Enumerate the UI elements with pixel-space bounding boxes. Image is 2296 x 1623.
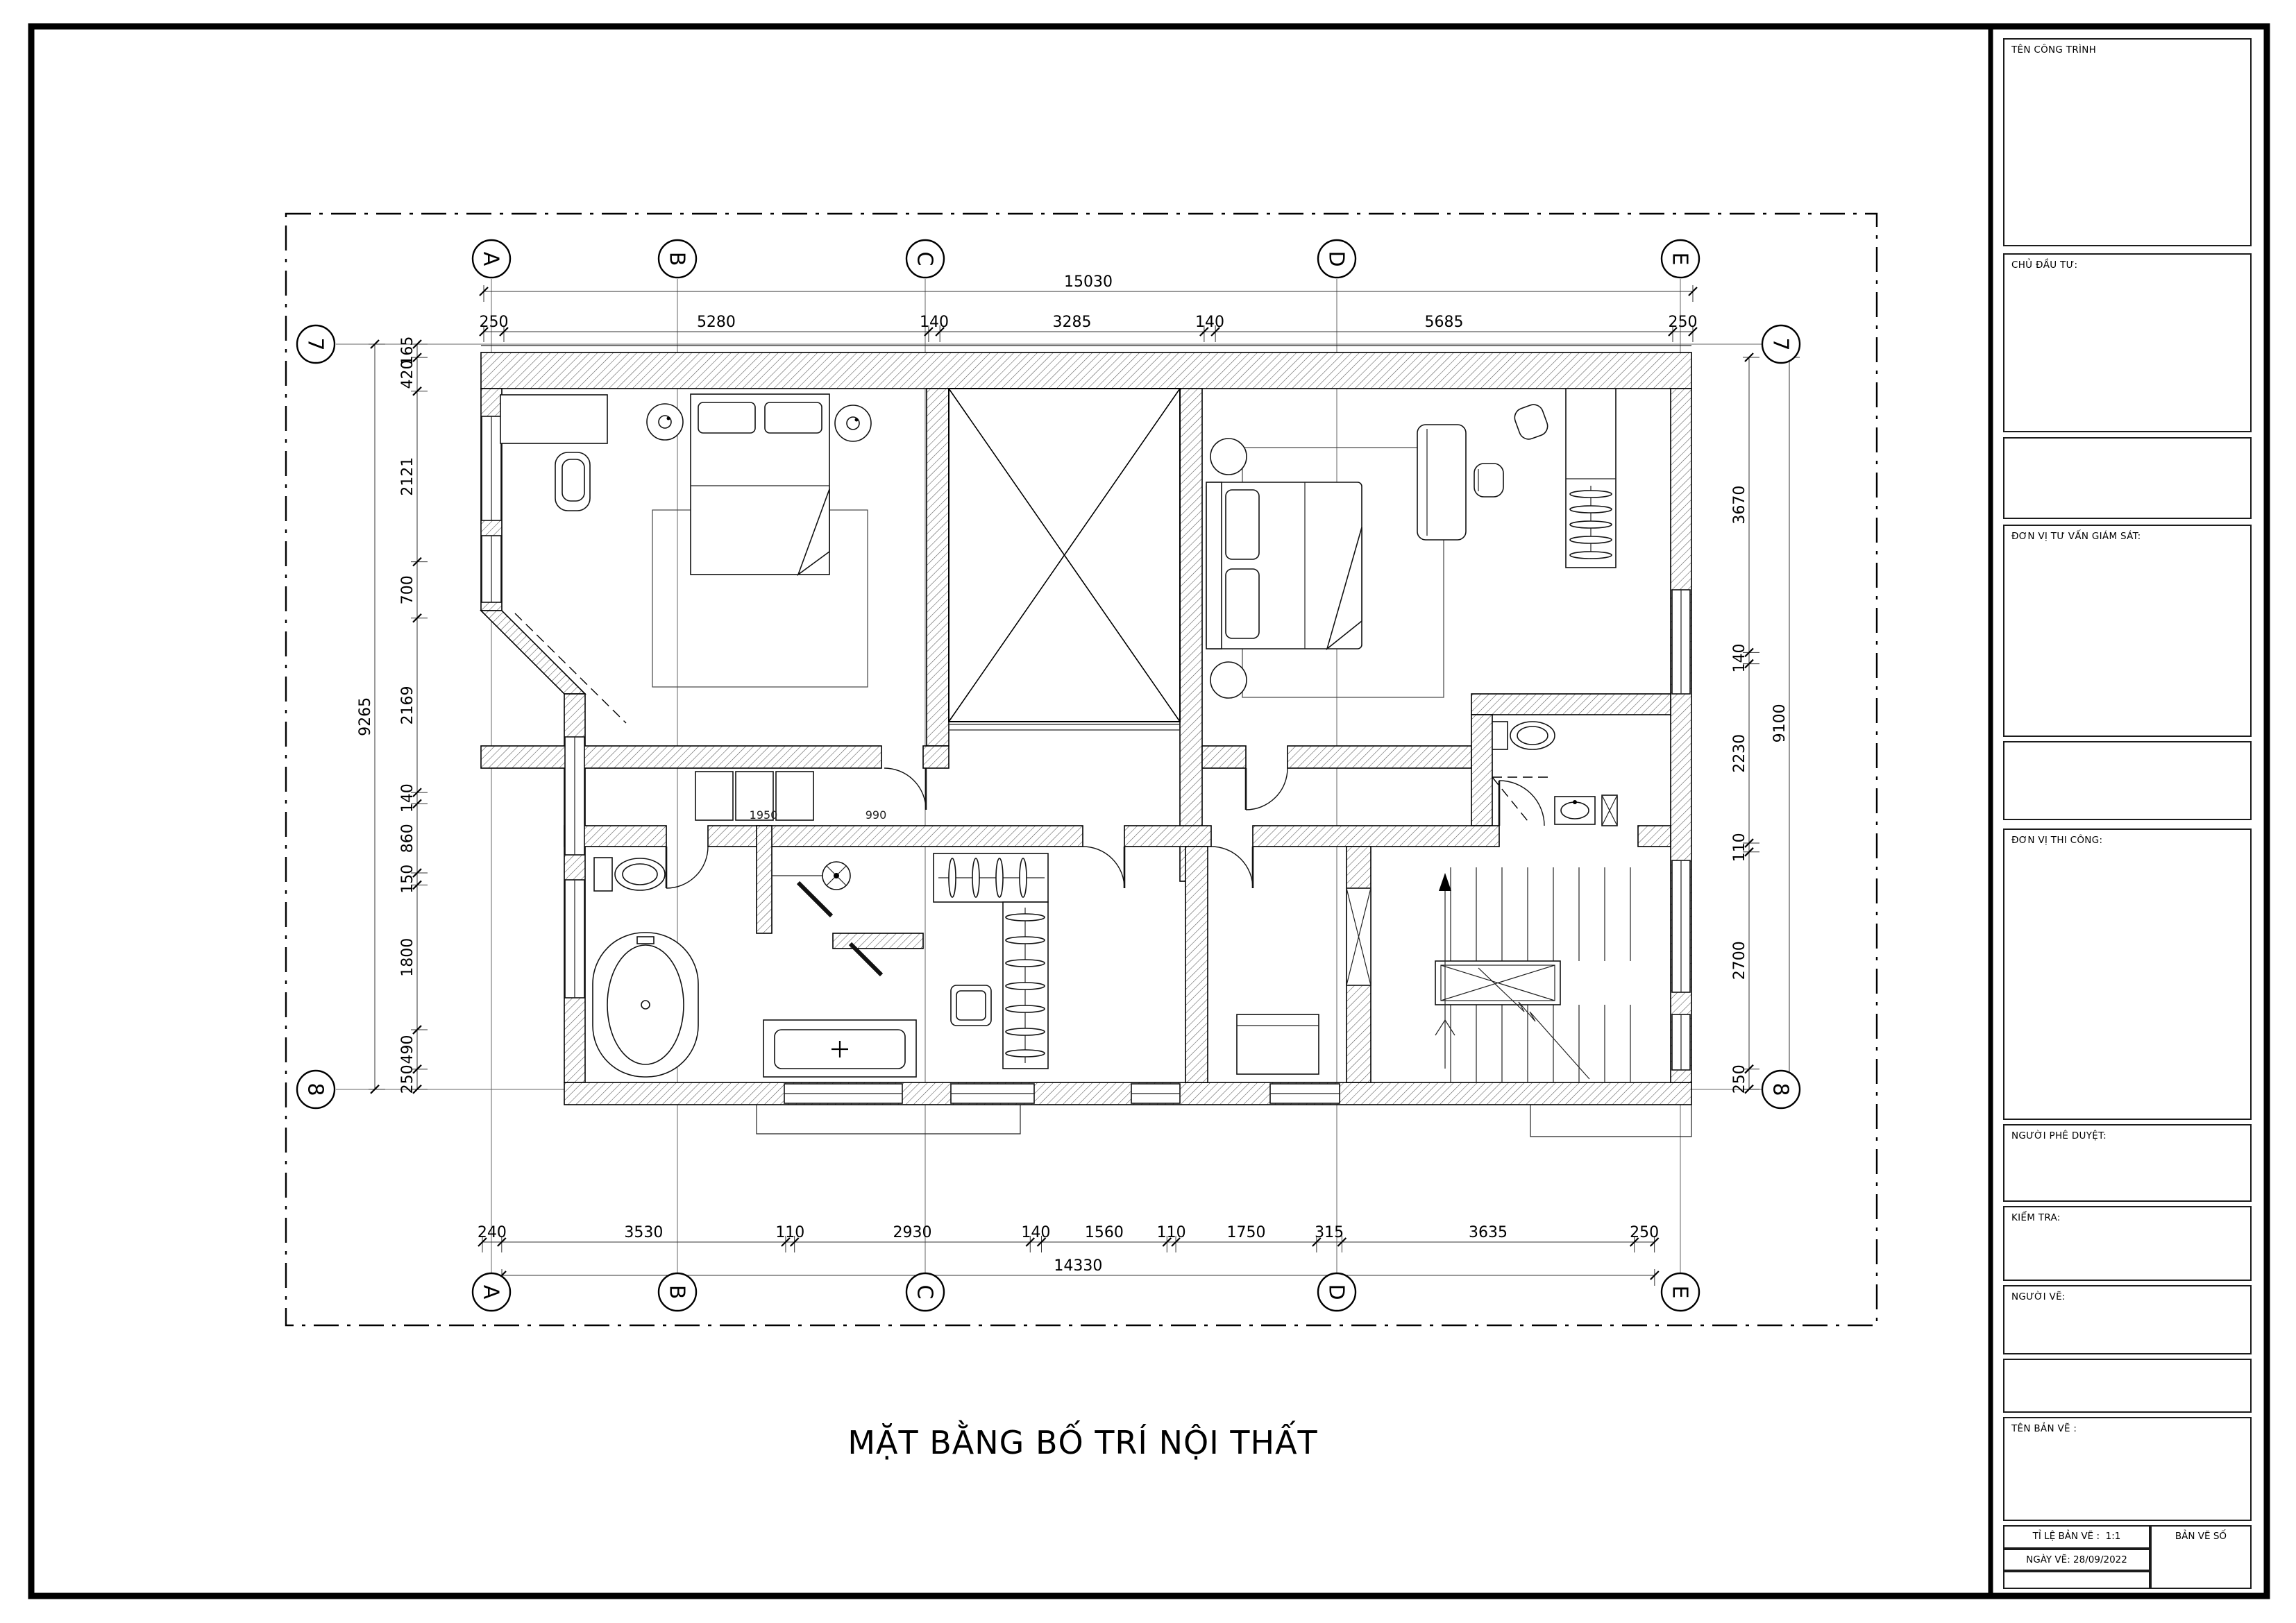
- dim-top-chain: 250528014032851405685250: [479, 314, 1697, 342]
- dim-top-overall: 15030: [480, 273, 1697, 302]
- bed-icon: [1206, 482, 1362, 649]
- svg-text:2169: 2169: [399, 686, 416, 724]
- svg-text:7: 7: [303, 337, 328, 350]
- dim-right-overall: 9100: [1771, 353, 1800, 1094]
- void-opening: [949, 389, 1180, 730]
- title-block-scale: TỈ LỆ BẢN VẼ : 1:1: [2003, 1525, 2150, 1549]
- staircase: [1435, 867, 1630, 1082]
- title-block-sheet-number: BẢN VẼ SỐ: [2150, 1525, 2252, 1589]
- svg-text:B: B: [665, 252, 689, 266]
- door-bath2: [1499, 781, 1544, 826]
- svg-text:3635: 3635: [1469, 1224, 1508, 1241]
- desk-chair-icon: [1474, 464, 1503, 497]
- svg-text:2930: 2930: [893, 1224, 931, 1241]
- svg-text:9265: 9265: [357, 697, 374, 736]
- svg-text:8: 8: [303, 1082, 328, 1096]
- nightstand-icon: [1210, 662, 1247, 698]
- grid-bubble-b-bottom: B: [659, 1273, 696, 1311]
- desk: [1417, 425, 1466, 540]
- table-lamp-icon: [647, 404, 683, 440]
- title-block-blank-1: [2003, 437, 2252, 519]
- svg-text:140: 140: [1195, 314, 1224, 331]
- inner-dim: 990: [866, 808, 887, 822]
- svg-text:860: 860: [399, 824, 416, 853]
- svg-text:250: 250: [479, 314, 508, 331]
- shaft-icon: [1347, 888, 1371, 985]
- window: [1270, 1084, 1340, 1103]
- nightstand-icon: [1210, 439, 1247, 475]
- table-lamp-icon: [835, 405, 871, 441]
- svg-text:1560: 1560: [1085, 1224, 1124, 1241]
- svg-text:240: 240: [478, 1224, 507, 1241]
- porch-step: [757, 1105, 1020, 1134]
- svg-text:700: 700: [399, 575, 416, 604]
- svg-text:D: D: [1324, 1284, 1349, 1300]
- svg-text:C: C: [913, 252, 937, 266]
- svg-text:110: 110: [1157, 1224, 1186, 1241]
- cabinet: [1237, 1014, 1319, 1074]
- svg-text:A: A: [479, 1285, 503, 1300]
- svg-text:E: E: [1668, 253, 1692, 266]
- svg-text:250: 250: [1668, 314, 1697, 331]
- svg-text:A: A: [479, 252, 503, 266]
- armchair-icon: [555, 452, 590, 511]
- grid-bubble-e-top: E: [1662, 240, 1699, 278]
- scale-value: 1:1: [2106, 1531, 2121, 1542]
- svg-text:110: 110: [775, 1224, 804, 1241]
- grid-bubble-d-top: D: [1318, 240, 1356, 278]
- title-block-blank-4: [2003, 1571, 2150, 1589]
- toilet-icon: [1492, 722, 1555, 749]
- dim-left-overall: 9265: [357, 340, 385, 1094]
- title-block-drafter: NGƯỜI VẼ:: [2003, 1285, 2252, 1354]
- svg-text:5685: 5685: [1425, 314, 1464, 331]
- floor-plan-canvas: 15030 250528014032851405685250 9265 1654…: [0, 0, 2296, 1623]
- svg-text:D: D: [1324, 250, 1349, 266]
- bed-icon: [691, 394, 829, 575]
- chair-icon: [1512, 402, 1550, 442]
- svg-text:250: 250: [399, 1064, 416, 1094]
- sink-icon: [1555, 797, 1595, 824]
- svg-text:110: 110: [1731, 833, 1748, 862]
- dim-left-chain: 165420212170021691408601501800490250: [399, 337, 428, 1094]
- shower-door-leaf: [798, 883, 832, 916]
- door-master: [1246, 768, 1288, 810]
- svg-text:B: B: [665, 1285, 689, 1300]
- svg-text:5280: 5280: [697, 314, 736, 331]
- title-block-date: NGÀY VẼ: 28/09/2022: [2003, 1549, 2150, 1571]
- svg-text:9100: 9100: [1771, 704, 1789, 742]
- svg-text:250: 250: [1630, 1224, 1659, 1241]
- title-block-blank-3: [2003, 1359, 2252, 1413]
- grid-bubble-b-top: B: [659, 240, 696, 278]
- window: [565, 880, 584, 998]
- window: [1672, 860, 1690, 992]
- svg-text:140: 140: [1021, 1224, 1050, 1241]
- window: [565, 737, 584, 855]
- sheet-number-label: BẢN VẼ SỐ: [2152, 1531, 2250, 1542]
- grid-bubble-a-top: A: [473, 240, 510, 278]
- grid-bubble-7-right: 7: [1762, 325, 1800, 363]
- door-closet: [1083, 847, 1124, 888]
- window: [482, 416, 501, 520]
- svg-text:140: 140: [1731, 643, 1748, 672]
- window: [784, 1084, 902, 1103]
- svg-text:1800: 1800: [399, 938, 416, 977]
- dim-right-chain: 367014022301102700250: [1731, 353, 1759, 1094]
- svg-text:250: 250: [1731, 1064, 1748, 1094]
- title-block-supervisor: ĐƠN VỊ TƯ VẤN GIÁM SÁT:: [2003, 525, 2252, 737]
- title-block-drawing-name: TÊN BẢN VẼ :: [2003, 1417, 2252, 1521]
- grid-bubble-8-right: 8: [1762, 1071, 1800, 1108]
- shower-icon: [772, 862, 850, 890]
- svg-text:3670: 3670: [1731, 486, 1748, 525]
- wardrobe-icon: [1566, 389, 1616, 568]
- date-value: 28/09/2022: [2073, 1554, 2127, 1565]
- toilet-icon: [594, 858, 665, 891]
- walk-in-closet: [934, 853, 1048, 1069]
- porch-step-right: [1530, 1105, 1691, 1137]
- window: [1672, 590, 1690, 694]
- window: [1131, 1084, 1180, 1103]
- clothes-rail: [1003, 902, 1048, 1069]
- desk: [500, 395, 607, 443]
- svg-text:3530: 3530: [624, 1224, 663, 1241]
- project-name-label: TÊN CÔNG TRÌNH: [2011, 44, 2096, 56]
- window: [482, 536, 501, 602]
- svg-text:420: 420: [399, 359, 416, 389]
- svg-text:8: 8: [1769, 1082, 1793, 1096]
- svg-text:E: E: [1668, 1286, 1692, 1299]
- stool-icon: [951, 985, 991, 1026]
- grid-bubble-e-bottom: E: [1662, 1273, 1699, 1311]
- title-block-approver: NGƯỜI PHÊ DUYỆT:: [2003, 1124, 2252, 1202]
- svg-text:C: C: [913, 1285, 937, 1300]
- svg-text:490: 490: [399, 1035, 416, 1064]
- svg-text:140: 140: [399, 783, 416, 813]
- door-bedroom1: [884, 768, 926, 810]
- svg-text:2121: 2121: [399, 457, 416, 496]
- svg-text:14330: 14330: [1054, 1257, 1102, 1275]
- title-block-contractor: ĐƠN VỊ THI CÔNG:: [2003, 829, 2252, 1120]
- grid-bubble-c-bottom: C: [906, 1273, 944, 1311]
- stair-treads-upper: [1451, 867, 1630, 961]
- grid-bubble-8-left: 8: [297, 1071, 335, 1108]
- bathroom-2: [1492, 722, 1617, 826]
- shower-corner: [1492, 777, 1548, 824]
- vanity-sink: [763, 1020, 916, 1077]
- inner-dim: 1950: [750, 808, 778, 822]
- window: [951, 1084, 1034, 1103]
- door-laundry: [1211, 847, 1253, 888]
- grid-bubble-a-bottom: A: [473, 1273, 510, 1311]
- clothes-rail: [934, 853, 1048, 902]
- sheet-frame: [31, 26, 2267, 1596]
- title-block-project: TÊN CÔNG TRÌNH: [2003, 38, 2252, 246]
- svg-text:3285: 3285: [1053, 314, 1092, 331]
- window: [1672, 1014, 1690, 1070]
- dim-bottom-chain: 24035301102930140156011017503153635250: [478, 1224, 1659, 1252]
- svg-text:15030: 15030: [1064, 273, 1113, 291]
- drawing-sheet: 15030 250528014032851405685250 9265 1654…: [0, 0, 2296, 1623]
- svg-text:2700: 2700: [1731, 941, 1748, 980]
- svg-text:140: 140: [920, 314, 949, 331]
- title-block-checker: KIỂM TRA:: [2003, 1206, 2252, 1281]
- svg-text:150: 150: [399, 865, 416, 894]
- column-icon: [1602, 795, 1617, 826]
- bathtub-icon: [593, 933, 698, 1077]
- svg-text:2230: 2230: [1731, 734, 1748, 773]
- door-bath1: [666, 847, 708, 888]
- bathroom-1: [593, 858, 916, 1077]
- title-block-investor: CHỦ ĐẦU TƯ:: [2003, 253, 2252, 432]
- plan-title: MẶT BẰNG BỐ TRÍ NỘI THẤT: [729, 1424, 1437, 1461]
- grid-bubble-d-bottom: D: [1318, 1273, 1356, 1311]
- svg-text:1750: 1750: [1226, 1224, 1265, 1241]
- stair-treads-lower: [1451, 1005, 1630, 1082]
- title-block-blank-2: [2003, 741, 2252, 820]
- stair-landing: [1435, 961, 1560, 1005]
- master-bedroom: [1206, 389, 1616, 698]
- svg-text:315: 315: [1315, 1224, 1344, 1241]
- svg-text:7: 7: [1769, 337, 1793, 350]
- grid-bubble-c-top: C: [906, 240, 944, 278]
- grid-bubble-7-left: 7: [297, 325, 335, 363]
